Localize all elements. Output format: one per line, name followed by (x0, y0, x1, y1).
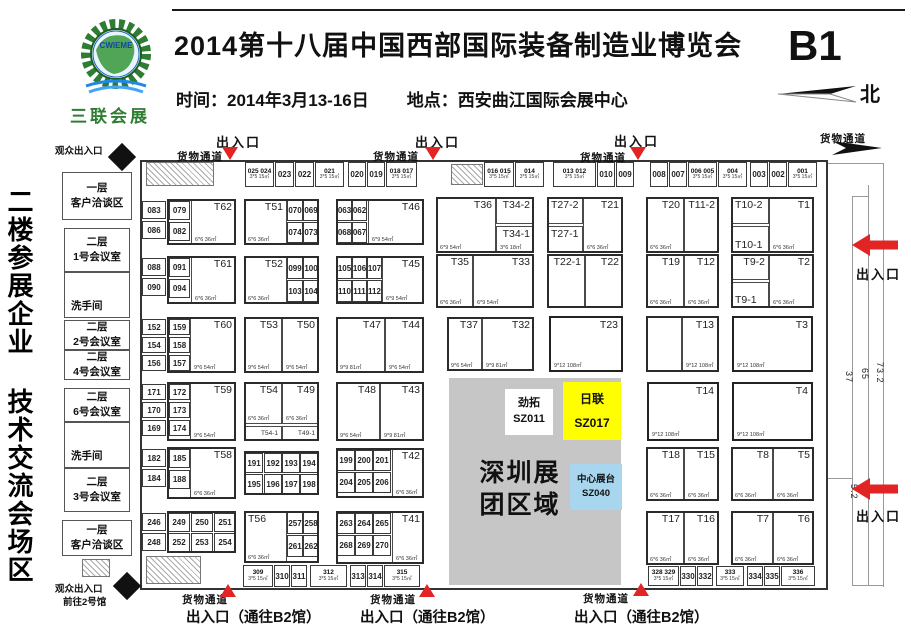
booth-309: 3093*5 15㎡ (243, 565, 273, 587)
meeting-room: 二层6号会议室 (64, 388, 130, 422)
booth-T18: T186*6 36㎡ (646, 447, 684, 501)
event-time: 时间：2014年3月13-16日 (176, 86, 369, 111)
booth-157: 157 (169, 355, 190, 371)
floor-label: 前往2号馆 (63, 594, 106, 608)
booth-T14: T149*12 108㎡ (647, 382, 719, 441)
booth-197: 197 (282, 474, 300, 494)
booth-269: 269 (355, 535, 373, 556)
booth-009: 009 (616, 162, 634, 187)
floor-label: 货物通道 (583, 591, 629, 606)
booth-T27-2: T27-2 (547, 197, 583, 224)
meeting-room: 二层3号会议室 (64, 468, 130, 512)
floor-plan-page: CWIEME 三联会展 2014第十八届中国西部国际装备制造业博览会 时间：20… (0, 0, 911, 633)
stairs-hatch (451, 164, 483, 185)
booth-100: 100 (303, 257, 319, 279)
booth-021: 0213*5 15㎡ (315, 162, 344, 187)
meeting-room: 一层客户洽谈区 (62, 520, 132, 556)
booth-195: 195 (245, 474, 263, 494)
booth-T17: T176*6 36㎡ (646, 511, 684, 565)
floor-label: 出入口 (856, 264, 901, 283)
booth-313: 313 (350, 565, 366, 587)
booth-T61: T616*6 36㎡ (191, 256, 236, 304)
booth-016-015: 016 0153*5 15㎡ (484, 162, 514, 187)
booth-201: 201 (373, 450, 391, 471)
booth-152: 152 (142, 319, 166, 335)
booth-314: 314 (367, 565, 383, 587)
zone-劲拓: 劲拓SZ011 (505, 389, 553, 435)
booth-079: 079 (169, 201, 190, 220)
booth-188: 188 (169, 470, 190, 489)
booth-082: 082 (169, 222, 190, 241)
booth-T47: T479*9 81㎡ (336, 317, 385, 373)
event-venue: 地点：西安曲江国际会展中心 (407, 86, 628, 111)
north-arrow-icon (778, 84, 858, 109)
booth-068: 068 (337, 222, 352, 243)
booth-257: 257 (287, 512, 303, 534)
zone-日联: 日联SZ017 (563, 382, 621, 440)
booth-091: 091 (169, 258, 190, 277)
booth-193: 193 (282, 453, 300, 473)
entrance-triangle-icon (419, 584, 435, 597)
booth-156: 156 (142, 355, 166, 371)
booth-T54: T546*6 36㎡ (244, 382, 282, 424)
booth-023: 023 (275, 162, 294, 187)
booth-254: 254 (214, 533, 236, 552)
booth-070: 070 (287, 200, 303, 221)
booth-T27-1: T27-1 (547, 226, 583, 253)
booth-334: 334 (747, 566, 763, 586)
booth-019: 019 (367, 162, 385, 187)
booth-268: 268 (337, 535, 355, 556)
exit-arrow-icon (852, 476, 898, 507)
booth-263: 263 (337, 513, 355, 534)
booth-248: 248 (142, 533, 166, 551)
booth-T43: T439*9 81㎡ (380, 382, 424, 441)
booth-246: 246 (142, 513, 166, 531)
page-subtitle: 时间：2014年3月13-16日 地点：西安曲江国际会展中心 (176, 86, 628, 111)
booth-312: 3123*5 15㎡ (310, 565, 347, 587)
booth-008: 008 (650, 162, 668, 187)
cargo-arrow-icon (832, 140, 882, 161)
booth-T7: T76*6 36㎡ (731, 511, 773, 565)
booth-265: 265 (373, 513, 391, 534)
page-title: 2014第十八届中国西部国际装备制造业博览会 (174, 24, 742, 63)
stairs-hatch (146, 162, 214, 186)
booth-T13: T139*12 108㎡ (682, 317, 718, 371)
booth-261: 261 (287, 535, 303, 557)
booth-T62: T626*6 36㎡ (191, 199, 236, 245)
booth-T41: T416*6 36㎡ (392, 511, 424, 564)
logo-name: 三联会展 (70, 102, 150, 127)
floor-label: 货物通道 (580, 150, 626, 165)
booth-T22-1: T22-1 (547, 254, 585, 308)
visitor-entrance-icon (113, 572, 141, 600)
booth-335: 335 (764, 566, 780, 586)
booth-T36: T366*9 54㎡ (436, 197, 496, 253)
zone-中心展台: 中心展台SZ040 (570, 464, 622, 510)
booth-T10-2: T10-2 (731, 197, 769, 224)
booth-270: 270 (373, 535, 391, 556)
booth-T44: T449*6 54㎡ (385, 317, 424, 373)
floor-label: 观众出入口 (55, 143, 103, 157)
stairs-hatch (146, 556, 201, 584)
booth-083: 083 (142, 201, 166, 219)
booth-110: 110 (337, 280, 352, 302)
booth-194: 194 (300, 453, 318, 473)
meeting-room: 洗手间 (64, 422, 130, 468)
booth-158: 158 (169, 337, 190, 353)
booth-173: 173 (169, 402, 190, 418)
left-vertical-title: 二楼参展企业 技术交流会场区 (6, 188, 32, 584)
booth-T48: T489*6 54㎡ (336, 382, 380, 441)
booth-067: 067 (352, 222, 367, 243)
booth-025-024: 025 0243*5 15㎡ (245, 162, 274, 187)
booth-103: 103 (287, 280, 303, 302)
booth-112: 112 (367, 280, 382, 302)
booth-T11-2: T11-2 (684, 197, 719, 253)
booth-T4: T49*12 108㎡ (732, 382, 813, 441)
floor-label: 65 (860, 368, 870, 380)
dimension-line (852, 585, 883, 586)
entrance-triangle-icon (222, 147, 238, 160)
booth-330: 330 (680, 566, 696, 586)
booth-107: 107 (367, 257, 382, 279)
booth-170: 170 (142, 402, 166, 418)
booth-T52: T526*6 36㎡ (244, 256, 287, 304)
booth-T34-2: T34-2 (496, 197, 534, 224)
exit-arrow-icon (852, 232, 898, 263)
floor-label: 出入口（通往B2馆） (360, 606, 495, 627)
booth-T33: T336*9 54㎡ (473, 254, 534, 308)
booth-T9-2: T9-2 (731, 254, 769, 280)
booth-T45: T456*9 54㎡ (382, 256, 424, 304)
booth-336: 3363*5 15㎡ (781, 566, 815, 586)
booth-002: 002 (769, 162, 787, 187)
booth-T1: T16*6 36㎡ (769, 197, 814, 253)
booth-090: 090 (142, 278, 166, 296)
booth-T51: T516*6 36㎡ (244, 199, 287, 245)
booth-154: 154 (142, 337, 166, 353)
booth-198: 198 (300, 474, 318, 494)
dimension-line (828, 163, 883, 164)
booth-T60: T609*6 54㎡ (190, 317, 236, 373)
booth-199: 199 (337, 450, 355, 471)
booth-205: 205 (355, 472, 373, 493)
meeting-room: 二层2号会议室 (64, 320, 130, 350)
booth-196: 196 (264, 474, 282, 494)
entrance-triangle-icon (633, 583, 649, 596)
booth-T12: T126*6 36㎡ (684, 254, 719, 308)
booth-184: 184 (142, 469, 166, 487)
floor-label: 出入口 (856, 506, 901, 525)
booth-172: 172 (169, 384, 190, 400)
hall-code: B1 (788, 22, 842, 70)
booth-T5: T56*6 36㎡ (773, 447, 814, 501)
booth-250: 250 (191, 513, 213, 532)
dimension-line (172, 9, 905, 11)
booth-062: 062 (352, 200, 367, 221)
booth-T35: T356*6 36㎡ (436, 254, 473, 308)
booth-004: 0043*5 15㎡ (718, 162, 747, 187)
meeting-room: 洗手间 (64, 272, 130, 318)
booth-253: 253 (191, 533, 213, 552)
booth-006-005: 006 0053*5 15㎡ (688, 162, 717, 187)
booth-182: 182 (142, 449, 166, 467)
floor-label: 出入口（通往B2馆） (574, 606, 709, 627)
zone-深圳展: 深圳展团区域 (468, 458, 572, 520)
booth-171: 171 (142, 384, 166, 400)
booth-086: 086 (142, 221, 166, 239)
booth-T58: T586*6 36㎡ (190, 447, 236, 499)
booth-T15: T156*6 36㎡ (684, 447, 719, 501)
entrance-triangle-icon (220, 584, 236, 597)
booth-252: 252 (168, 533, 190, 552)
booth-073: 073 (303, 222, 319, 243)
floor-label: 73.2 (875, 362, 885, 384)
booth-099: 099 (287, 257, 303, 279)
booth-020: 020 (348, 162, 366, 187)
booth-185: 185 (169, 449, 190, 468)
booth-T50: T509*6 54㎡ (282, 317, 319, 373)
booth-T42: T426*6 36㎡ (392, 448, 424, 498)
booth-251: 251 (214, 513, 236, 532)
booth-262: 262 (303, 535, 319, 557)
floor-label: 货物通道 (177, 149, 223, 164)
booth-T20: T206*6 36㎡ (646, 197, 684, 253)
booth-T2: T26*6 36㎡ (769, 254, 814, 308)
booth-105: 105 (337, 257, 352, 279)
floor-label: 37 (844, 371, 854, 383)
booth-258: 258 (303, 512, 319, 534)
booth-104: 104 (303, 280, 319, 302)
booth-069: 069 (303, 200, 319, 221)
booth-001: 0013*5 15㎡ (788, 162, 817, 187)
booth-204: 204 (337, 472, 355, 493)
booth-169: 169 (142, 420, 166, 436)
booth-T59: T599*6 54㎡ (190, 382, 236, 441)
booth-018-017: 018 0173*5 15㎡ (386, 162, 417, 187)
entrance-triangle-icon (630, 147, 646, 160)
booth-T37: T379*6 54㎡ (447, 317, 482, 371)
booth-106: 106 (352, 257, 367, 279)
booth-T49-1: T49-1 (282, 426, 319, 441)
booth-T54-1: T54-1 (244, 426, 282, 441)
logo-gear-icon: CWIEME (74, 14, 158, 107)
dimension-line (852, 196, 868, 197)
booth-074: 074 (287, 222, 303, 243)
floor-label: 货物通道 (373, 149, 419, 164)
booth-332: 332 (697, 566, 713, 586)
booth-T6: T66*6 36㎡ (773, 511, 814, 565)
visitor-entrance-icon (108, 143, 136, 171)
booth-310: 310 (274, 565, 290, 587)
meeting-room: 一层客户洽谈区 (62, 172, 132, 220)
booth-191: 191 (245, 453, 263, 473)
floor-label: 货物通道 (370, 592, 416, 607)
booth-333: 3333*5 15㎡ (716, 566, 744, 586)
logo-badge: CWIEME (100, 41, 134, 50)
booth-cell (647, 317, 682, 371)
booth-T16: T166*6 36㎡ (684, 511, 719, 565)
floor-label: 出入口（通往B2馆） (186, 606, 321, 627)
booth-159: 159 (169, 319, 190, 335)
booth-174: 174 (169, 420, 190, 436)
booth-003: 003 (750, 162, 768, 187)
booth-007: 007 (669, 162, 687, 187)
booth-T56: T566*6 36㎡ (244, 511, 287, 563)
booth-010: 010 (597, 162, 615, 187)
booth-022: 022 (295, 162, 314, 187)
entrance-triangle-icon (425, 147, 441, 160)
north-label: 北 (860, 78, 880, 107)
booth-111: 111 (352, 280, 367, 302)
meeting-room: 二层4号会议室 (64, 350, 130, 380)
booth-094: 094 (169, 279, 190, 298)
booth-T49: T496*6 36㎡ (282, 382, 319, 424)
booth-T19: T196*6 36㎡ (646, 254, 684, 308)
booth-T9-1: T9-1 (731, 282, 769, 308)
booth-264: 264 (355, 513, 373, 534)
booth-T34-1: T34-13*6 18㎡ (496, 226, 534, 253)
booth-249: 249 (168, 513, 190, 532)
booth-T3: T39*12 108㎡ (732, 316, 813, 372)
booth-T32: T329*9 81㎡ (482, 317, 534, 371)
booth-192: 192 (264, 453, 282, 473)
booth-T10-1: T10-1 (731, 226, 769, 253)
booth-328-329: 328 3293*5 15㎡ (648, 566, 679, 586)
booth-063: 063 (337, 200, 352, 221)
dimension-line (828, 478, 852, 479)
booth-200: 200 (355, 450, 373, 471)
booth-013-012: 013 0123*5 15㎡ (553, 162, 596, 187)
booth-T22: T22 (585, 254, 623, 308)
meeting-room: 二层1号会议室 (64, 228, 130, 272)
floor-label: 观众出入口 (55, 581, 103, 595)
booth-T53: T539*6 54㎡ (244, 317, 282, 373)
booth-088: 088 (142, 258, 166, 276)
booth-311: 311 (291, 565, 307, 587)
stairs-hatch (82, 559, 110, 577)
booth-T23: T239*12 108㎡ (549, 316, 623, 372)
booth-T46: T466*9 54㎡ (368, 199, 424, 245)
booth-T21: T216*6 36㎡ (583, 197, 623, 253)
booth-014: 0143*5 15㎡ (515, 162, 544, 187)
booth-T8: T86*6 36㎡ (731, 447, 773, 501)
booth-315: 3153*5 15㎡ (384, 565, 420, 587)
booth-206: 206 (373, 472, 391, 493)
